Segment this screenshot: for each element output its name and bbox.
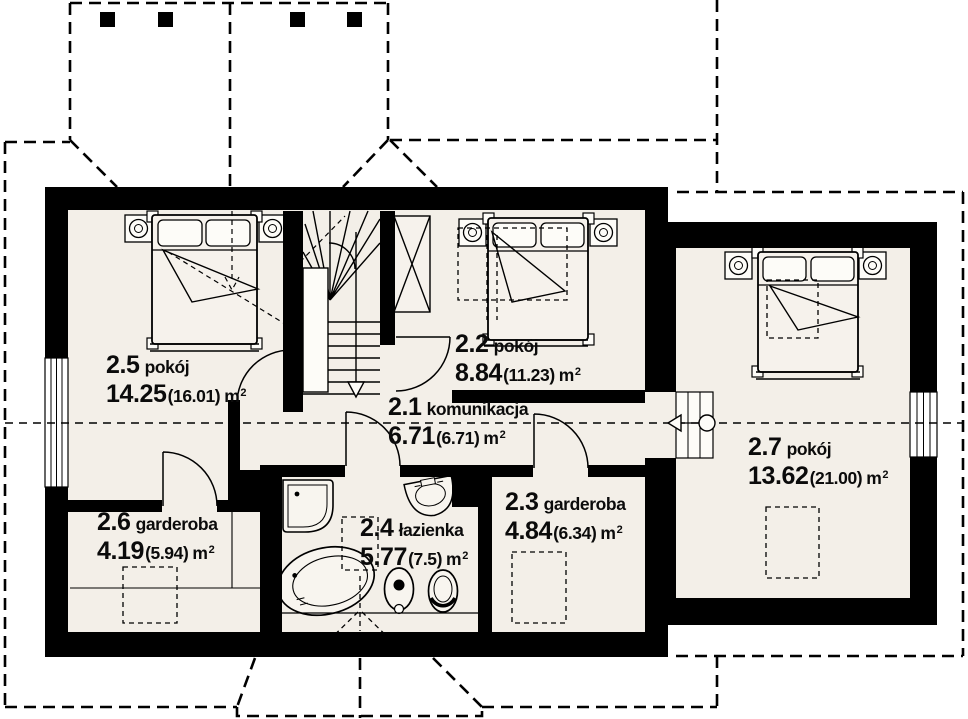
- shower-icon: [283, 480, 333, 532]
- room-label-2-6: 2.6garderoba 4.19(5.94)m2: [97, 510, 218, 567]
- room-area: 13.62(21.00)m2: [748, 463, 888, 492]
- pillow-icon: [811, 257, 854, 281]
- wall: [228, 400, 240, 477]
- room-label-2-7: 2.7pokój 13.62(21.00)m2: [748, 435, 888, 492]
- wall: [45, 632, 668, 657]
- room-area: 4.84(6.34)m2: [505, 518, 626, 547]
- wall: [45, 187, 668, 210]
- room-area: 5.77(7.5)m2: [360, 544, 468, 573]
- room-label-2-5: 2.5pokój 14.25(16.01)m2: [106, 353, 246, 410]
- wall: [217, 500, 228, 512]
- room-title: 2.7pokój: [748, 435, 888, 463]
- wardrobe-icon-2-2: [394, 216, 430, 312]
- wall: [400, 465, 533, 477]
- pillow-icon: [158, 220, 202, 246]
- floor-plan: 2.1komunikacja 6.71(6.71)m2 2.2pokój 8.8…: [0, 0, 968, 719]
- room-title: 2.5pokój: [106, 353, 246, 381]
- bidet-icon: [429, 570, 458, 612]
- pillow-icon: [763, 257, 806, 281]
- room-label-2-2: 2.2pokój 8.84(11.23)m2: [455, 332, 581, 389]
- room-label-2-1: 2.1komunikacja 6.71(6.71)m2: [388, 395, 528, 452]
- chimney-icon: [290, 12, 305, 27]
- pillow-icon: [493, 223, 536, 247]
- wall: [260, 512, 282, 632]
- room-label-2-4: 2.4łazienka 5.77(7.5)m2: [360, 516, 468, 573]
- room-title: 2.2pokój: [455, 332, 581, 360]
- room-title: 2.4łazienka: [360, 516, 468, 544]
- wall: [668, 222, 937, 248]
- wall: [283, 211, 303, 412]
- room-label-2-3: 2.3garderoba 4.84(6.34)m2: [505, 490, 626, 547]
- wall: [588, 465, 648, 477]
- room-title: 2.3garderoba: [505, 490, 626, 518]
- wall: [668, 598, 937, 625]
- room-area: 14.25(16.01)m2: [106, 381, 246, 410]
- room-title: 2.6garderoba: [97, 510, 218, 538]
- pillow-icon: [541, 223, 584, 247]
- wall: [478, 477, 492, 632]
- pillow-icon: [206, 220, 250, 246]
- room-area: 8.84(11.23)m2: [455, 360, 581, 389]
- window-right: [910, 392, 937, 457]
- chimney-icon: [347, 12, 362, 27]
- wall: [292, 400, 303, 412]
- room-title: 2.1komunikacja: [388, 395, 528, 423]
- wall: [228, 470, 282, 512]
- room-area: 6.71(6.71)m2: [388, 423, 528, 452]
- room-area: 4.19(5.94)m2: [97, 538, 218, 567]
- chimney-icon: [100, 12, 115, 27]
- wall: [380, 211, 395, 345]
- chimney-icon: [158, 12, 173, 27]
